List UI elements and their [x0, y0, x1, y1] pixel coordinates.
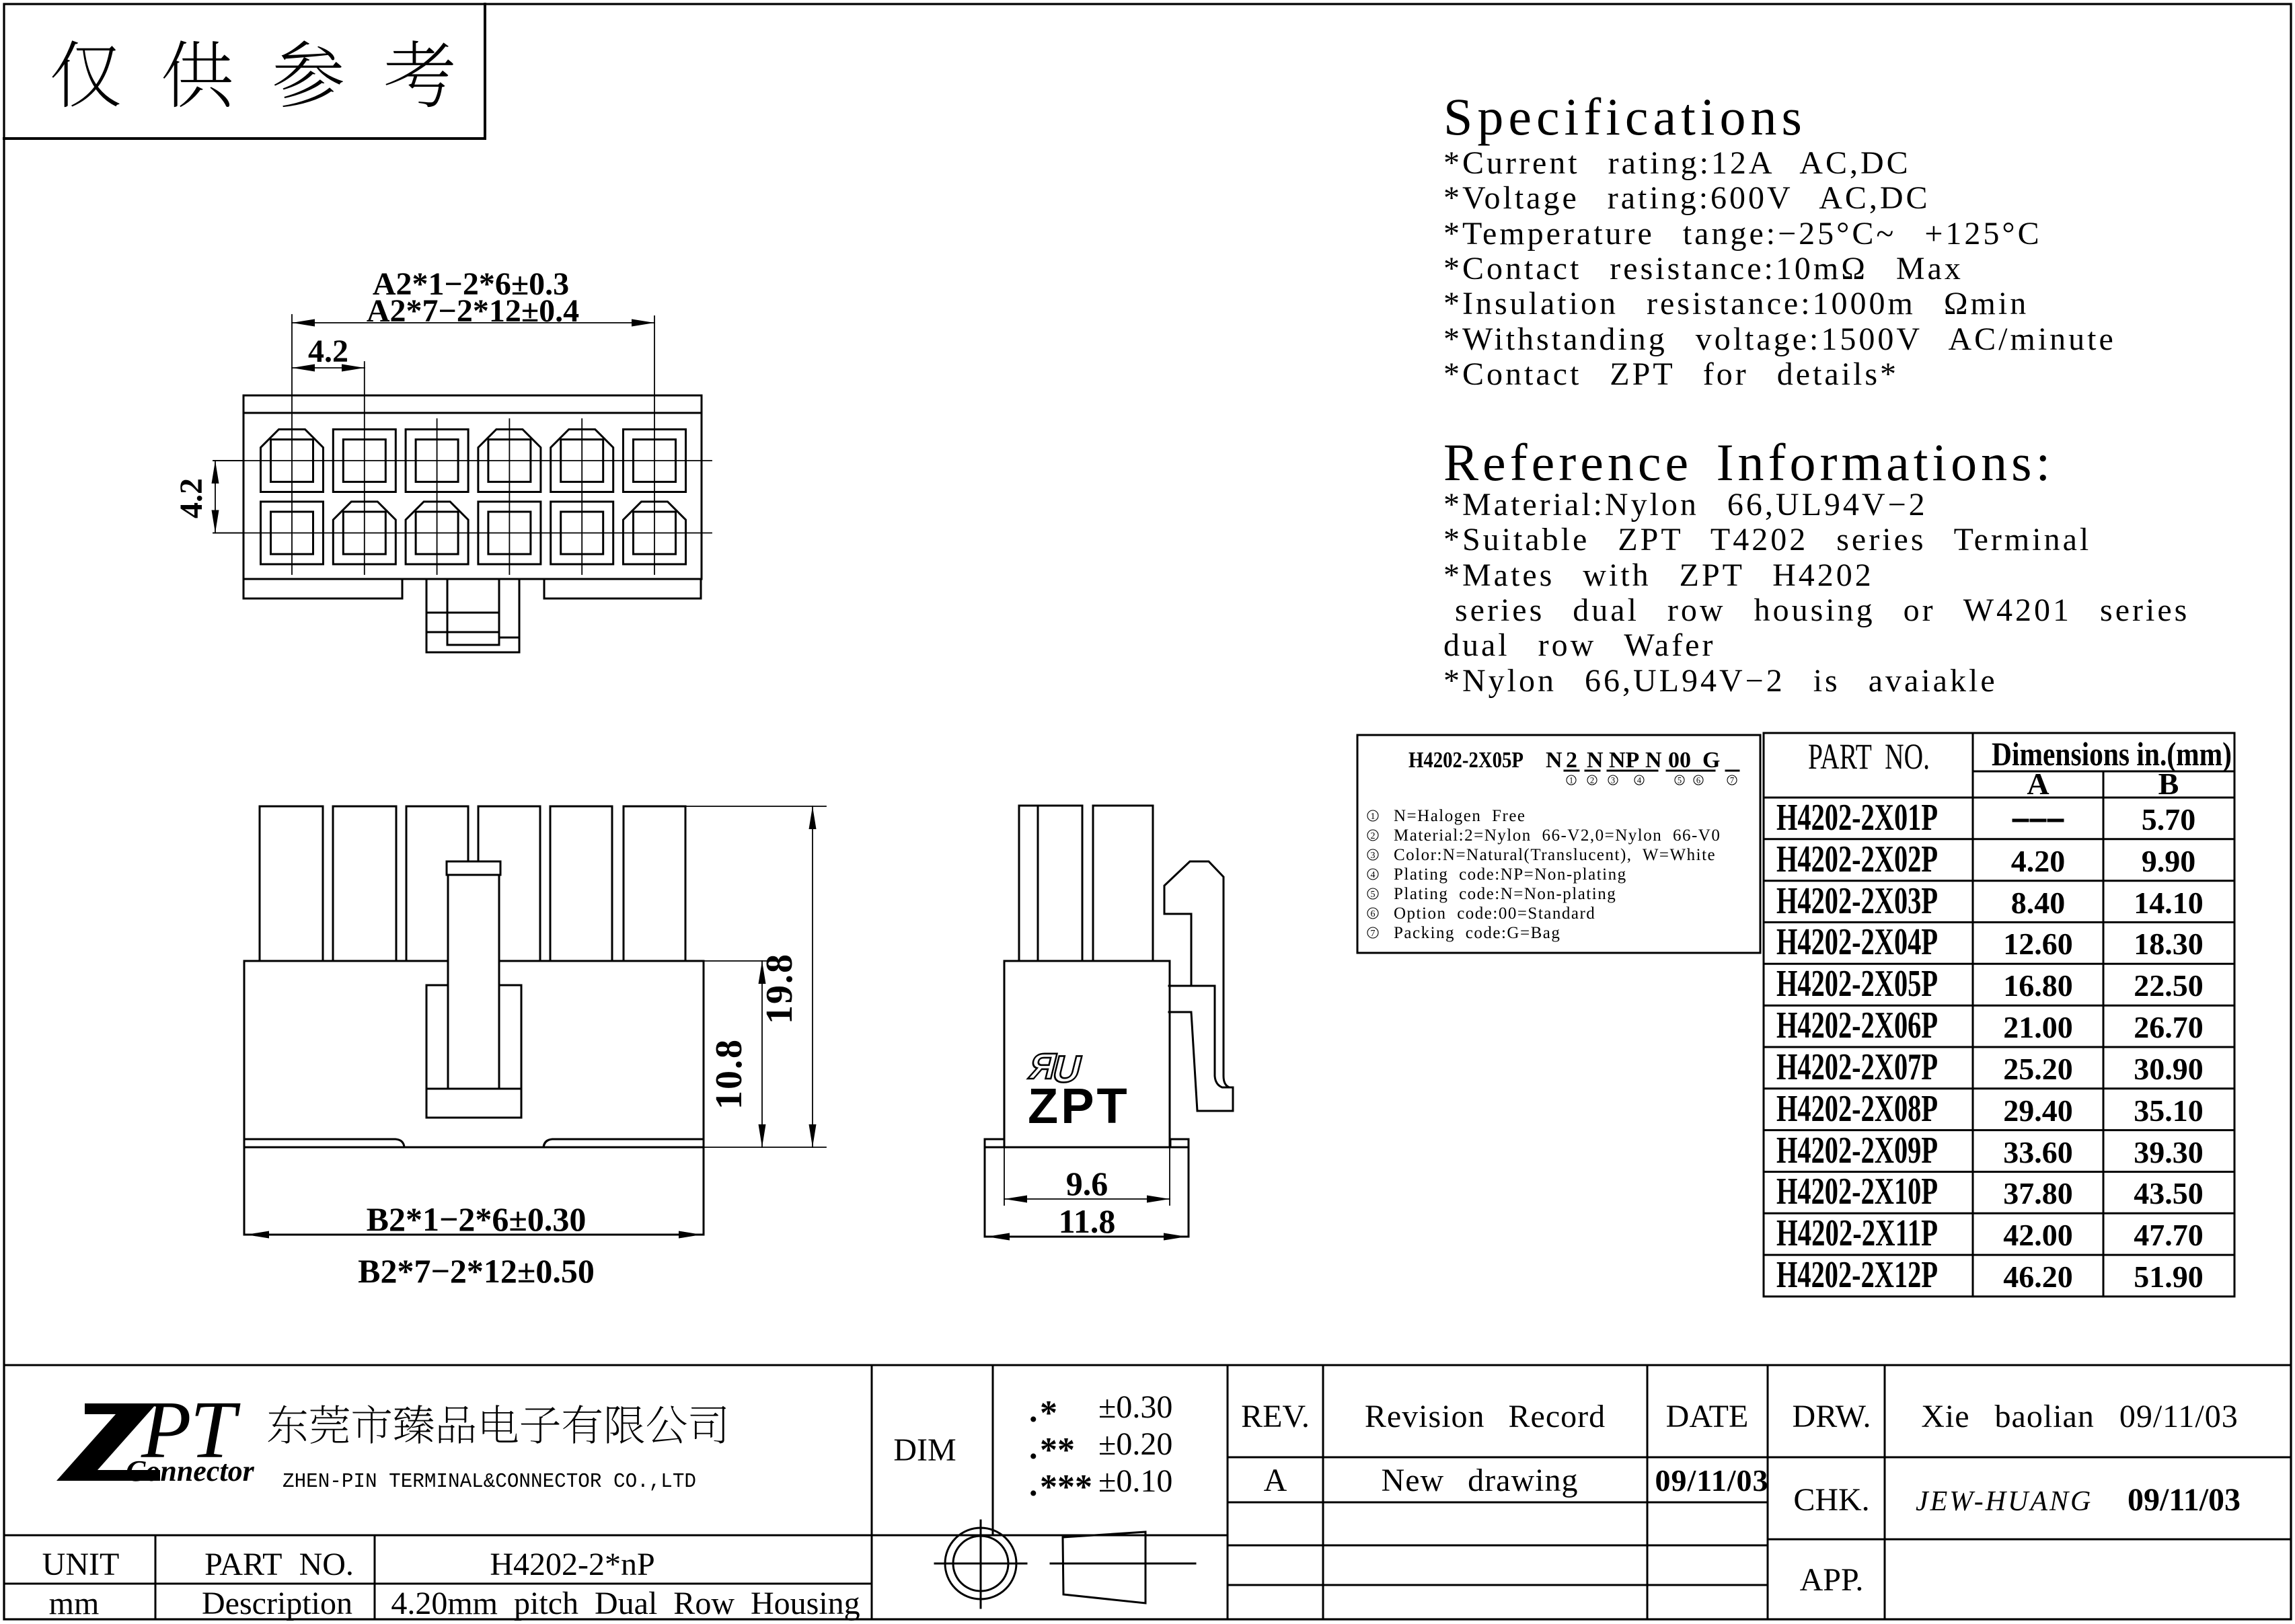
svg-text:14.10: 14.10 — [2134, 886, 2204, 920]
svg-text:H4202-2X05P: H4202-2X05P — [1408, 748, 1523, 773]
svg-text:Material:2=Nylon 66-V2,0=Nylon: Material:2=Nylon 66-V2,0=Nylon 66-V0 — [1394, 826, 1721, 845]
svg-text:33.60: 33.60 — [2003, 1135, 2073, 1169]
svg-text:19.8: 19.8 — [759, 953, 800, 1024]
svg-text:29.40: 29.40 — [2003, 1093, 2073, 1128]
svg-text:H4202-2X03P: H4202-2X03P — [1776, 880, 1938, 922]
svg-text:9.90: 9.90 — [2142, 844, 2196, 878]
svg-text:21.00: 21.00 — [2003, 1010, 2073, 1044]
svg-text:***: *** — [1040, 1468, 1092, 1506]
svg-text:H4202-2X06P: H4202-2X06P — [1776, 1005, 1938, 1046]
svg-text:±0.20: ±0.20 — [1098, 1426, 1172, 1462]
svg-text:*Nylon 66,UL94V−2 is avaiakle: *Nylon 66,UL94V−2 is avaiakle — [1443, 663, 1998, 699]
svg-text:Plating code:NP=Non-plating: Plating code:NP=Non-plating — [1394, 865, 1627, 884]
svg-text:H4202-2X04P: H4202-2X04P — [1776, 921, 1938, 963]
svg-text:4: 4 — [1637, 775, 1642, 785]
svg-text:ZHEN-PIN TERMINAL&CONNECTOR CO: ZHEN-PIN TERMINAL&CONNECTOR CO.,LTD — [283, 1470, 696, 1494]
svg-text:51.90: 51.90 — [2134, 1260, 2204, 1294]
svg-text:*Temperature tange:−25°C~ +125: *Temperature tange:−25°C~ +125°C — [1443, 216, 2042, 252]
svg-text:12.60: 12.60 — [2003, 927, 2073, 961]
svg-text:UNIT: UNIT — [42, 1547, 120, 1582]
svg-text:4.2: 4.2 — [174, 478, 209, 518]
svg-text:4.20: 4.20 — [2011, 844, 2066, 878]
svg-text:Xie baolian 09/11/03: Xie baolian 09/11/03 — [1921, 1399, 2238, 1434]
svg-text:6: 6 — [1371, 909, 1376, 919]
svg-text:8.40: 8.40 — [2011, 886, 2066, 920]
svg-text:47.70: 47.70 — [2134, 1218, 2204, 1252]
svg-text:PART NO.: PART NO. — [1808, 736, 1930, 777]
svg-text:26.70: 26.70 — [2134, 1010, 2204, 1044]
svg-text:16.80: 16.80 — [2003, 968, 2073, 1003]
svg-text:B2*1−2*6±0.30: B2*1−2*6±0.30 — [367, 1200, 587, 1238]
svg-text:9.6: 9.6 — [1066, 1165, 1108, 1202]
svg-text:A: A — [2027, 767, 2049, 801]
svg-text:2: 2 — [1371, 831, 1376, 841]
svg-text:Specifications: Specifications — [1443, 87, 1807, 146]
svg-text:Connector: Connector — [126, 1455, 255, 1487]
svg-text:5: 5 — [1371, 890, 1376, 900]
svg-text:22.50: 22.50 — [2134, 968, 2204, 1003]
svg-text:2: 2 — [1590, 775, 1594, 785]
svg-text:dual row Wafer: dual row Wafer — [1443, 627, 1715, 663]
svg-text:3: 3 — [1611, 775, 1615, 785]
svg-text:N=Halogen Free: N=Halogen Free — [1394, 807, 1526, 825]
svg-text:*Material:Nylon 66,UL94V−2: *Material:Nylon 66,UL94V−2 — [1443, 487, 1928, 523]
svg-text:25.20: 25.20 — [2003, 1052, 2073, 1086]
svg-text:CHK.: CHK. — [1793, 1482, 1869, 1518]
svg-text:G: G — [1702, 748, 1720, 773]
svg-text:N: N — [1587, 748, 1604, 773]
svg-text:09/11/03: 09/11/03 — [2128, 1482, 2241, 1518]
svg-text:H4202-2X08P: H4202-2X08P — [1776, 1088, 1938, 1130]
svg-text:*Contact resistance:10mΩ Max: *Contact resistance:10mΩ Max — [1443, 251, 1963, 286]
svg-text:N: N — [1645, 748, 1662, 773]
svg-text:B: B — [2158, 767, 2179, 801]
svg-text:H4202-2X05P: H4202-2X05P — [1776, 963, 1938, 1005]
svg-text:1: 1 — [1569, 775, 1573, 785]
svg-text:Description: Description — [202, 1586, 352, 1621]
svg-text:39.30: 39.30 — [2134, 1135, 2204, 1169]
svg-text:±0.30: ±0.30 — [1098, 1389, 1172, 1425]
svg-text:DATE: DATE — [1666, 1399, 1749, 1434]
svg-text:4: 4 — [1371, 870, 1376, 880]
svg-text:*Suitable ZPT T4202 series Ter: *Suitable ZPT T4202 series Terminal — [1443, 522, 2091, 557]
svg-text:A: A — [1264, 1463, 1287, 1498]
svg-text:46.20: 46.20 — [2003, 1260, 2073, 1294]
svg-text:5.70: 5.70 — [2142, 802, 2196, 837]
svg-text:*Insulation resistance:1000m Ω: *Insulation resistance:1000m Ωmin — [1443, 286, 2029, 321]
svg-text:H4202-2X01P: H4202-2X01P — [1776, 797, 1938, 839]
svg-text:00: 00 — [1668, 748, 1691, 773]
svg-text:PART NO.: PART NO. — [204, 1547, 354, 1582]
svg-text:*Mates with ZPT H4202: *Mates with ZPT H4202 — [1443, 557, 1874, 593]
svg-text:.: . — [1029, 1391, 1038, 1429]
svg-text:37.80: 37.80 — [2003, 1176, 2073, 1210]
svg-text:*Voltage rating:600V AC,DC: *Voltage rating:600V AC,DC — [1443, 180, 1930, 216]
svg-text:5: 5 — [1678, 775, 1682, 785]
svg-text:NP: NP — [1609, 748, 1639, 773]
svg-text:**: ** — [1040, 1431, 1075, 1469]
svg-text:10.8: 10.8 — [708, 1038, 750, 1110]
svg-text:42.00: 42.00 — [2003, 1218, 2073, 1252]
svg-text:6: 6 — [1696, 775, 1700, 785]
svg-text:±0.10: ±0.10 — [1098, 1463, 1172, 1499]
svg-text:*Current rating:12A AC,DC: *Current rating:12A AC,DC — [1443, 145, 1911, 181]
svg-text:DRW.: DRW. — [1793, 1399, 1871, 1434]
svg-text:N: N — [1546, 748, 1563, 773]
svg-text:1: 1 — [1371, 812, 1376, 822]
svg-text:A2*7−2*12±0.4: A2*7−2*12±0.4 — [367, 293, 579, 329]
svg-text:H4202-2X10P: H4202-2X10P — [1776, 1171, 1938, 1212]
svg-text:Packing code:G=Bag: Packing code:G=Bag — [1394, 924, 1560, 942]
svg-text:H4202-2X09P: H4202-2X09P — [1776, 1130, 1938, 1171]
svg-text:*: * — [1040, 1394, 1057, 1432]
svg-text:09/11/03: 09/11/03 — [1655, 1463, 1768, 1498]
svg-text:ZPT: ZPT — [1028, 1078, 1130, 1134]
svg-text:series dual row housing or W42: series dual row housing or W4201 series — [1455, 592, 2189, 628]
svg-text:35.10: 35.10 — [2134, 1093, 2204, 1128]
svg-text:18.30: 18.30 — [2134, 927, 2204, 961]
svg-text:4.2: 4.2 — [308, 334, 348, 369]
svg-text:New drawing: New drawing — [1382, 1463, 1579, 1498]
svg-text:.: . — [1029, 1428, 1038, 1466]
svg-text:Revision Record: Revision Record — [1365, 1399, 1606, 1434]
svg-text:.: . — [1029, 1465, 1038, 1503]
svg-text:H4202-2X02P: H4202-2X02P — [1776, 839, 1938, 880]
svg-text:7: 7 — [1371, 929, 1376, 939]
svg-text:*Contact ZPT for details*: *Contact ZPT for details* — [1443, 356, 1899, 392]
svg-text:B2*7−2*12±0.50: B2*7−2*12±0.50 — [358, 1252, 595, 1290]
svg-text:43.50: 43.50 — [2134, 1176, 2204, 1210]
svg-text:*Withstanding voltage:1500V AC: *Withstanding voltage:1500V AC/minute — [1443, 321, 2116, 357]
svg-text:Option code:00=Standard: Option code:00=Standard — [1394, 904, 1595, 923]
svg-text:JEW-HUANG: JEW-HUANG — [1916, 1486, 2093, 1517]
svg-text:7: 7 — [1730, 775, 1734, 785]
svg-text:4.20mm pitch Dual Row Housing: 4.20mm pitch Dual Row Housing — [391, 1586, 860, 1621]
svg-text:mm: mm — [49, 1586, 100, 1621]
svg-text:Plating code:N=Non-plating: Plating code:N=Non-plating — [1394, 885, 1616, 903]
svg-text:DIM: DIM — [893, 1432, 956, 1468]
svg-text:H4202-2X12P: H4202-2X12P — [1776, 1254, 1938, 1296]
svg-text:APP.: APP. — [1800, 1562, 1864, 1598]
svg-text:3: 3 — [1371, 851, 1376, 861]
svg-text:30.90: 30.90 — [2134, 1052, 2204, 1086]
svg-text:2: 2 — [1566, 748, 1577, 773]
svg-text:11.8: 11.8 — [1059, 1202, 1116, 1240]
svg-text:H4202-2X11P: H4202-2X11P — [1776, 1212, 1938, 1254]
svg-text:H4202-2X07P: H4202-2X07P — [1776, 1046, 1938, 1088]
svg-text:Color:N=Natural(Translucent),: Color:N=Natural(Translucent), W=White — [1394, 846, 1716, 864]
svg-text:REV.: REV. — [1241, 1399, 1310, 1434]
svg-text:Reference Informations:: Reference Informations: — [1443, 433, 2054, 492]
svg-text:H4202-2*nP: H4202-2*nP — [490, 1547, 654, 1582]
